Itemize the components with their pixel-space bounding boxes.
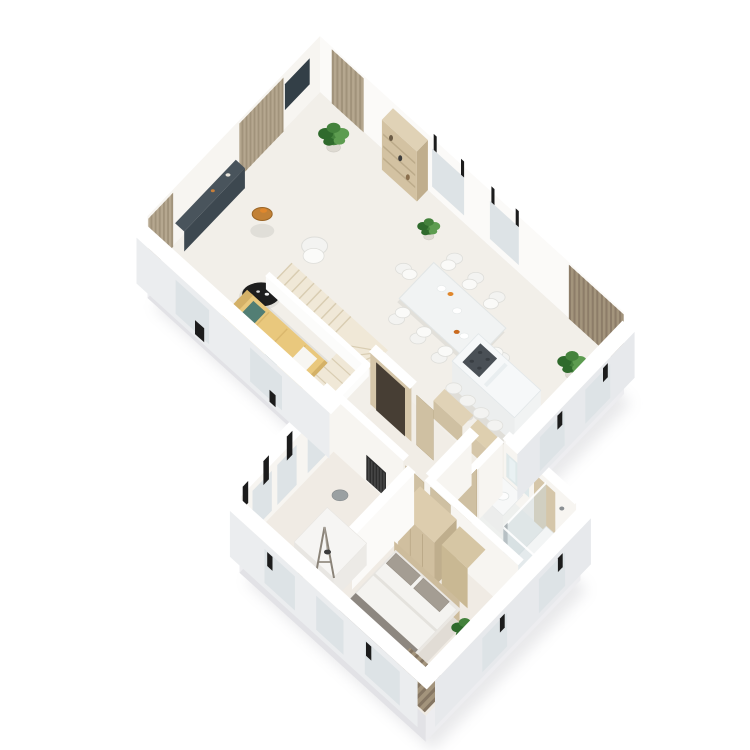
bar-stool — [473, 408, 489, 419]
fruit-bowl — [260, 208, 267, 212]
dining-chair-seat — [441, 260, 456, 270]
curtain-dining-stripe — [332, 49, 334, 105]
plant-foliage — [562, 365, 573, 373]
curtain-living-2-stripe — [171, 193, 173, 249]
curtain-living-1-stripe — [270, 90, 272, 146]
curtain-dining-stripe — [336, 54, 338, 110]
curtain-living-1-stripe — [266, 94, 268, 150]
window-sash — [434, 134, 437, 153]
radiator-fin — [368, 458, 369, 482]
plant-foliage — [327, 123, 341, 133]
floor-plan-svg — [0, 0, 750, 750]
curtain-corner-right-stripe — [578, 273, 580, 329]
bar-stool — [446, 383, 462, 394]
shelf-decor — [406, 174, 410, 180]
curtain-dining-stripe — [350, 66, 352, 122]
curtain-living-1-stripe — [278, 82, 280, 138]
window-sash — [491, 186, 494, 205]
plate — [453, 308, 462, 314]
burner — [470, 360, 474, 363]
bar-stool — [459, 395, 475, 406]
curtain-living-1-stripe — [282, 78, 284, 134]
radiator-fin — [380, 469, 381, 493]
curtain-corner-right-stripe — [596, 290, 598, 346]
curtain-corner-right-stripe — [574, 269, 576, 325]
burner — [486, 358, 490, 361]
radiator-fin — [377, 466, 378, 490]
dining-chair-seat — [483, 299, 498, 309]
dining-chair-seat — [402, 269, 417, 279]
curtain-corner-right-stripe — [569, 265, 571, 321]
curtain-corner-right-stripe — [583, 277, 585, 333]
side-table-shadow — [250, 224, 274, 238]
pendant-lamp — [324, 550, 331, 555]
plate — [437, 286, 446, 292]
dining-chair-seat — [417, 327, 432, 337]
curtain-dining-stripe — [355, 70, 357, 126]
floor-plan-render — [0, 0, 750, 750]
radiator-fin — [371, 461, 372, 485]
window-sash — [461, 159, 464, 178]
shelf-decor — [389, 135, 393, 141]
shower-head — [559, 507, 564, 511]
curtain-living-1-stripe — [262, 99, 264, 155]
plant-foliage — [429, 228, 438, 234]
armchair-seat — [303, 248, 324, 263]
plant-foliage — [334, 137, 346, 145]
bar-stool — [487, 420, 503, 431]
canvas — [0, 0, 750, 750]
coffee-table-decor — [265, 293, 269, 296]
burner — [478, 351, 482, 354]
fruit-bowl — [448, 292, 454, 296]
radiator-fin — [374, 464, 375, 488]
curtain-living-1-stripe — [258, 103, 260, 159]
plant-foliage — [323, 138, 335, 146]
plate — [460, 333, 469, 339]
window-sash — [516, 208, 519, 227]
curtain-dining-stripe — [359, 74, 361, 130]
shelf-decor — [398, 155, 402, 161]
burner — [477, 367, 481, 370]
plant-foliage — [421, 229, 430, 235]
curtain-living-1-stripe — [246, 115, 248, 171]
media-decor — [211, 189, 215, 192]
coffee-table-decor — [256, 290, 260, 292]
plant-foliage — [424, 218, 434, 226]
curtain-dining-stripe — [341, 58, 343, 114]
curtain-living-1-stripe — [254, 107, 256, 163]
dining-chair-seat — [438, 346, 453, 356]
curtain-living-1-stripe — [274, 86, 276, 142]
curtain-corner-right-stripe — [587, 281, 589, 337]
plant-foliage — [566, 351, 579, 361]
office-stool — [332, 490, 348, 501]
dining-chair-seat — [462, 279, 477, 289]
fruit-bowl — [454, 330, 460, 334]
media-decor — [226, 173, 231, 176]
curtain-corner-right-stripe — [592, 285, 594, 341]
curtain-living-1-stripe — [250, 111, 252, 167]
curtain-corner-right-stripe — [601, 294, 603, 350]
curtain-dining-stripe — [346, 62, 348, 118]
dining-chair-seat — [395, 307, 410, 317]
